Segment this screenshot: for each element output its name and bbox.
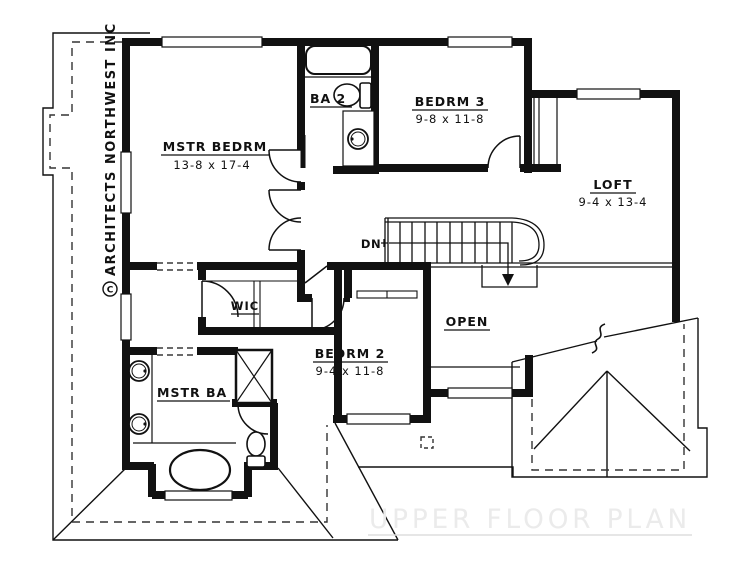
window-mstr-bedrm-left xyxy=(121,152,131,213)
label-ba2: BA 2 xyxy=(310,91,346,106)
garage-roof-hips xyxy=(534,371,690,477)
stair-rail-curve xyxy=(512,218,544,265)
label-wic: WIC xyxy=(231,299,259,313)
mstrba-sink-1-drain xyxy=(143,369,146,372)
mstrba-toilet-tank xyxy=(247,456,265,467)
page-title: UPPER FLOOR PLAN xyxy=(369,504,691,535)
mstr-bedrm-double-door xyxy=(269,190,301,250)
label-loft: LOFT xyxy=(593,177,632,192)
dims-loft: 9-4 x 13-4 xyxy=(579,195,648,209)
garage-roof-outline xyxy=(512,318,707,477)
window-loft-top xyxy=(577,89,640,99)
roof-break-symbol xyxy=(592,324,605,353)
mstrba-toilet-bowl xyxy=(247,432,265,456)
floor-plan-drawing: MSTR BEDRM 13-8 x 17-4 BA 2 BEDRM 3 9-8 … xyxy=(0,0,750,583)
sheet-title: UPPER FLOOR PLAN xyxy=(368,504,692,535)
mstrba-shower xyxy=(236,350,272,403)
window-bedrm3-top xyxy=(448,37,512,47)
garage-roof-dashed xyxy=(532,324,684,470)
window-vestibule-left xyxy=(121,294,131,340)
label-dn: DN xyxy=(361,237,381,251)
copyright-letter: C xyxy=(107,286,114,296)
label-open: OPEN xyxy=(446,314,489,329)
window-tub-bay xyxy=(165,491,232,500)
bedrm3-door xyxy=(488,136,520,168)
mstrba-sink-2-drain xyxy=(143,422,146,425)
nook-door xyxy=(302,266,327,283)
chase-lines xyxy=(534,94,557,166)
bedrm2-closet xyxy=(357,291,417,298)
window-mstr-bedrm-top xyxy=(162,37,262,47)
ba2-sink-drain xyxy=(350,137,353,140)
floor-plan-page: MSTR BEDRM 13-8 x 17-4 BA 2 BEDRM 3 9-8 … xyxy=(0,0,750,583)
stairs xyxy=(381,218,544,287)
roof-dashed-left xyxy=(50,42,327,522)
porch-eave xyxy=(358,467,513,477)
chimney-dashed-box xyxy=(421,437,433,448)
ba2-toilet-tank xyxy=(360,83,371,108)
ba2-door xyxy=(269,150,301,182)
label-bedrm2: BEDRM 2 xyxy=(315,346,386,361)
dims-bedrm3: 9-8 x 11-8 xyxy=(416,112,485,126)
window-open-area xyxy=(448,388,512,398)
ba2-tub xyxy=(306,46,371,74)
label-bedrm3: BEDRM 3 xyxy=(415,94,486,109)
roof-hip-bottom-left xyxy=(53,467,127,540)
architect-watermark: C ARCHITECTS NORTHWEST INC xyxy=(103,22,119,296)
cased-openings-dashed xyxy=(157,263,197,355)
roof-hip-tub-bay xyxy=(278,468,333,538)
label-mstr-bedrm: MSTR BEDRM xyxy=(163,139,267,154)
window-bedrm2-bottom xyxy=(347,414,410,424)
loft-railing xyxy=(431,263,676,267)
toilet-room-door xyxy=(238,404,268,434)
mstrba-tub xyxy=(170,450,230,490)
dims-mstr-bedrm: 13-8 x 17-4 xyxy=(173,158,250,172)
stair-down-arrow xyxy=(502,274,514,286)
watermark-text: ARCHITECTS NORTHWEST INC xyxy=(104,22,119,276)
label-mstr-ba: MSTR BA xyxy=(157,385,227,400)
dims-bedrm2: 9-4 x 11-8 xyxy=(316,364,385,378)
